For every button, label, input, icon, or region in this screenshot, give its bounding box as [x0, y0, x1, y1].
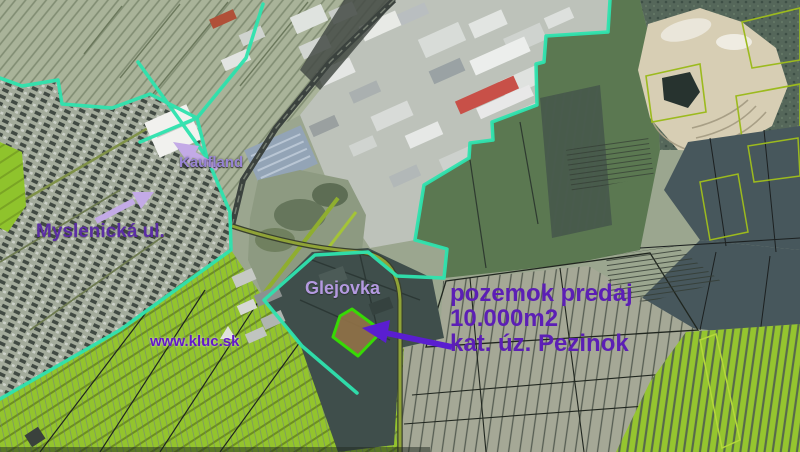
- listing-title: pozemok predaj: [450, 281, 633, 306]
- listing-cadastre: kat. úz. Pezinok: [450, 331, 633, 356]
- label-myslenicka-street: Myslenická ul.: [36, 222, 165, 241]
- website-link[interactable]: www.kluc.sk: [150, 334, 239, 349]
- bottom-shadow: [0, 447, 430, 452]
- map-viewport: Kaufland Myslenická ul. Glejovka www.klu…: [0, 0, 800, 452]
- listing-area: 10.000m2: [450, 306, 633, 331]
- label-glejovka: Glejovka: [305, 279, 380, 297]
- listing-annotation: pozemok predaj 10.000m2 kat. úz. Pezinok: [450, 281, 633, 356]
- label-kaufland: Kaufland: [179, 155, 243, 170]
